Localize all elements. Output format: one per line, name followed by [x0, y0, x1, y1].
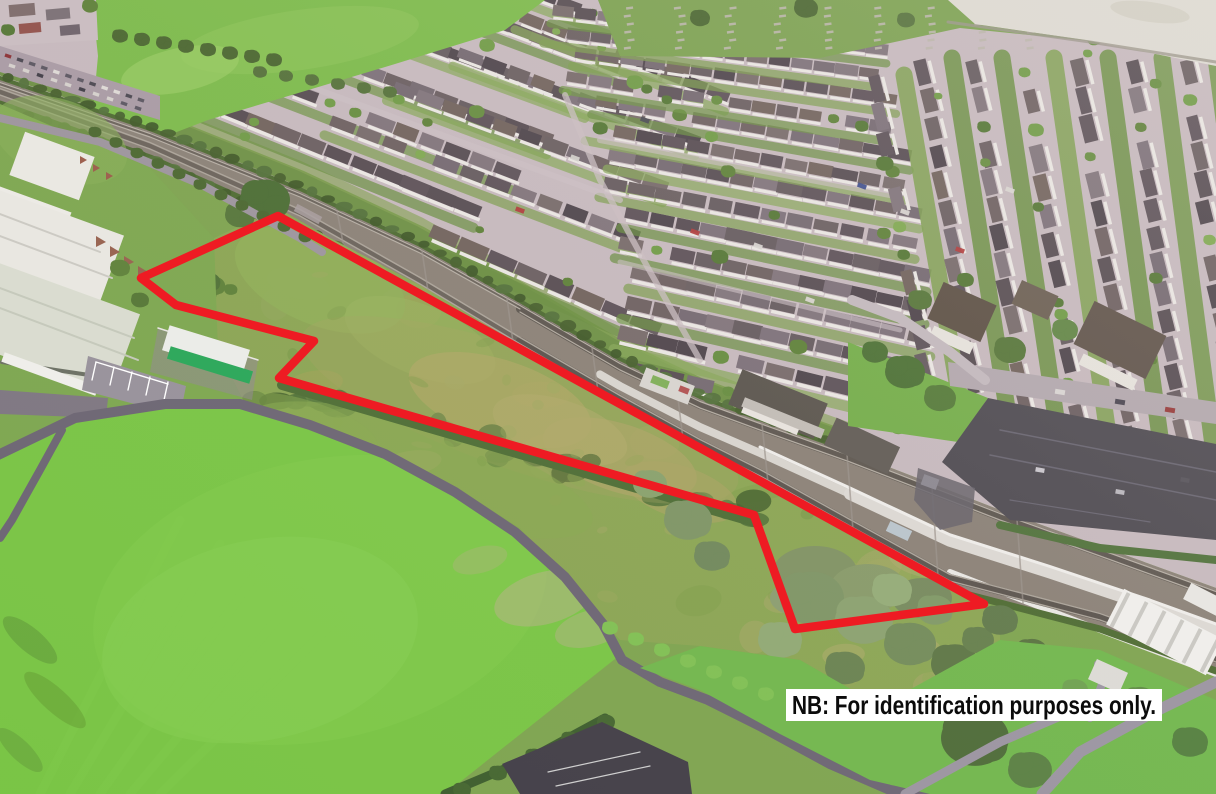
svg-text:NB: For identification purpose: NB: For identification purposes only. [792, 690, 1156, 720]
